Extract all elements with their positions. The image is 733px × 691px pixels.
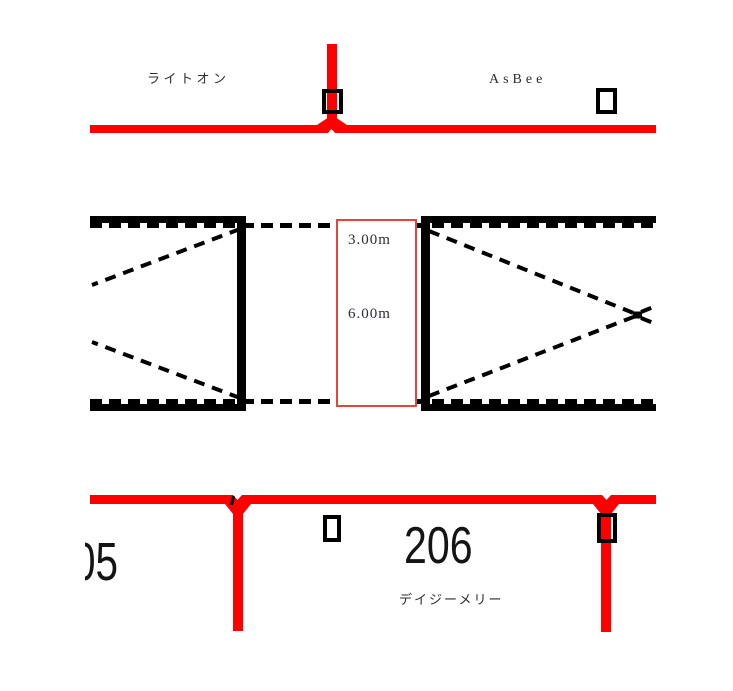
entrance-icon-top-right [596, 88, 617, 114]
building-right-diagonal-lower-continuation [641, 318, 656, 324]
parcel-number-206: 206 [404, 520, 473, 572]
top-horizontal-road [90, 125, 656, 133]
store-label-asbee: AsBee [489, 72, 546, 88]
building-right-diagonal-upper [429, 231, 636, 314]
building-right-diagonal-lower [429, 316, 636, 396]
parcel-number-left: 05 [85, 535, 118, 589]
building-left-diagonal-upper [92, 229, 240, 285]
x-vertex-icon [633, 312, 642, 319]
store-label-righton: ライトオン [147, 68, 230, 87]
dimension-box: 3.00m 6.00m [336, 219, 417, 407]
store-label-daisymerry: デイジーメリー [399, 589, 503, 608]
top-vertical-road [327, 44, 337, 129]
parcel-number-left-clip: 05 [85, 535, 127, 589]
dimension-width-label: 3.00m [348, 232, 391, 249]
bottom-horizontal-road [90, 495, 656, 504]
dimension-length-label: 6.00m [348, 306, 391, 323]
bottom-left-vertical-road [233, 504, 243, 631]
map-canvas: 3.00m 6.00m ライトオン AsBee デイジーメリー 05 206 [0, 0, 733, 691]
building-left-diagonal-lower [92, 342, 240, 398]
entrance-icon-top-road [322, 89, 343, 114]
entrance-icon-bottom-center [323, 515, 341, 542]
building-right-diagonal-upper-continuation [641, 306, 656, 312]
entrance-icon-bottom-road [597, 513, 617, 543]
